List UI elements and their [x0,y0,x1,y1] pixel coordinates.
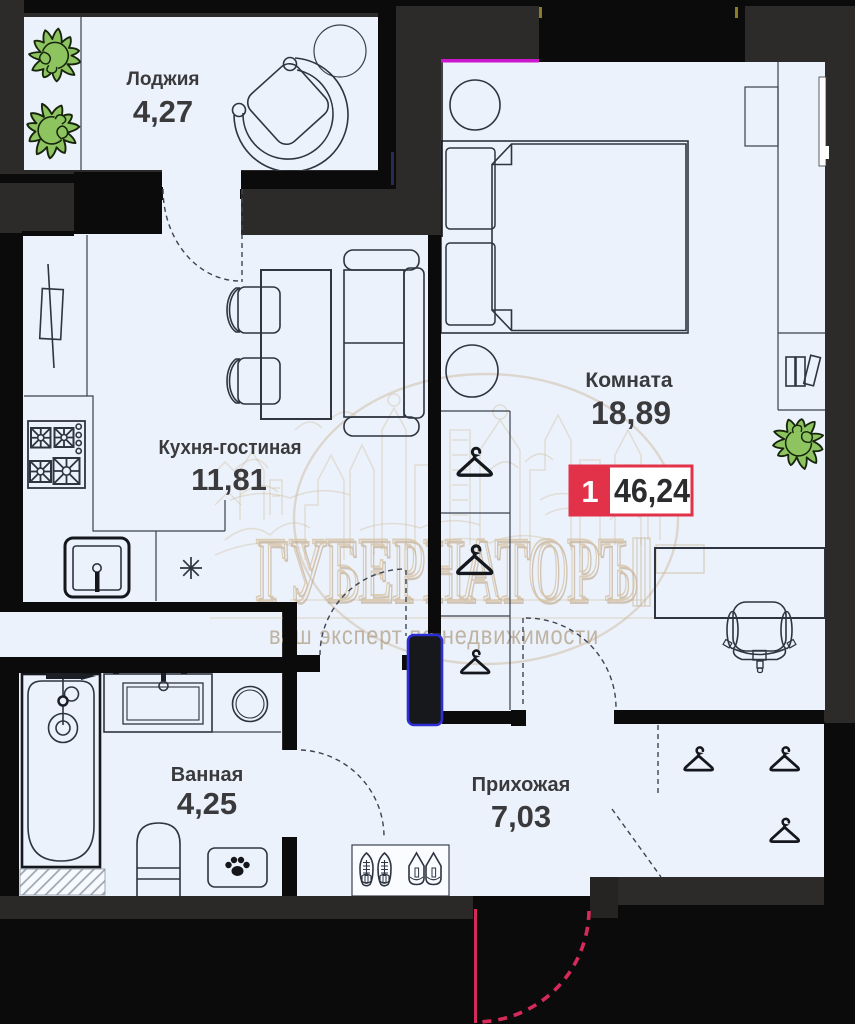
svg-text:1: 1 [581,474,598,509]
svg-text:ГУБЕРНАТОРЪ: ГУБЕРНАТОРЪ [256,519,637,621]
svg-text:Кухня-гостиная: Кухня-гостиная [159,437,302,459]
svg-text:4,27: 4,27 [133,94,193,129]
svg-text:11,81: 11,81 [191,462,267,497]
svg-text:Прихожая: Прихожая [472,774,571,796]
svg-text:18,89: 18,89 [591,395,671,431]
svg-text:7,03: 7,03 [491,799,551,834]
svg-text:Ванная: Ванная [171,764,244,786]
svg-text:4,25: 4,25 [177,786,237,821]
svg-text:Лоджия: Лоджия [127,69,200,90]
svg-text:Комната: Комната [585,369,673,392]
svg-text:46,24: 46,24 [614,472,691,509]
